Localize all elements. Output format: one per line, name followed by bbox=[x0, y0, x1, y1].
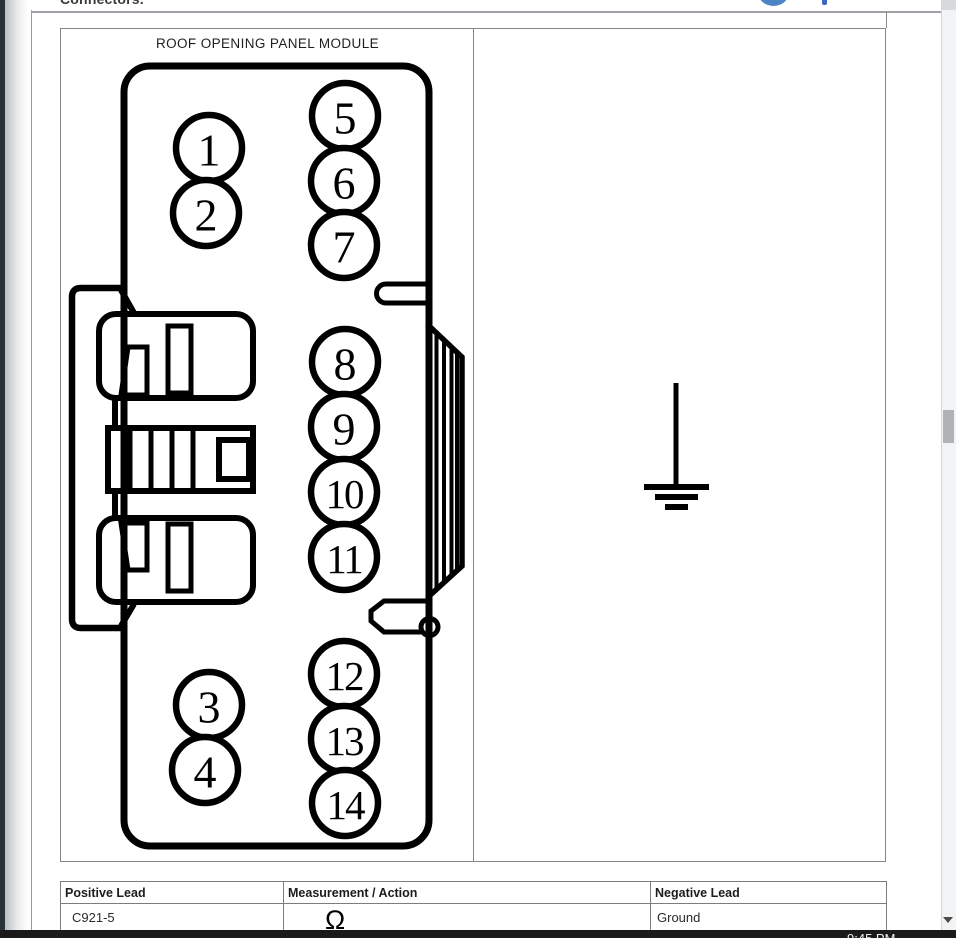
taskbar-clock[interactable]: 9:45 PM bbox=[847, 931, 895, 938]
pin-number-12: 12 bbox=[326, 653, 364, 699]
pin-number-7: 7 bbox=[333, 222, 356, 273]
page-left-border bbox=[31, 10, 32, 930]
pin-group: 1234567891011121314 bbox=[172, 83, 378, 836]
scrollbar-top-cap bbox=[941, 0, 956, 10]
pin-number-14: 14 bbox=[327, 782, 366, 828]
pin-number-5: 5 bbox=[334, 93, 357, 144]
pin-number-6: 6 bbox=[333, 158, 356, 209]
pin-number-2: 2 bbox=[195, 190, 218, 241]
pin-number-9: 9 bbox=[333, 404, 356, 455]
pin-number-8: 8 bbox=[334, 339, 357, 390]
section-heading-clipped: Connectors. bbox=[58, 0, 258, 9]
pin-number-10: 10 bbox=[326, 471, 364, 517]
ground-icon bbox=[473, 28, 886, 862]
taskbar bbox=[0, 930, 956, 938]
vertical-scrollbar[interactable] bbox=[941, 0, 956, 938]
scrollbar-down-arrow-icon[interactable] bbox=[943, 917, 953, 923]
column-header-measurement-action: Measurement / Action bbox=[284, 882, 651, 904]
pin-number-1: 1 bbox=[198, 125, 221, 176]
side-latch bbox=[72, 288, 253, 628]
pin-number-13: 13 bbox=[326, 718, 364, 764]
section-heading-text: Connectors. bbox=[60, 0, 144, 7]
toolbar-bookmark-icon[interactable] bbox=[822, 0, 827, 5]
heading-divider-line bbox=[31, 11, 941, 13]
scrollbar-thumb[interactable] bbox=[943, 410, 954, 443]
connector-body: 1234567891011121314 bbox=[72, 66, 462, 846]
left-edge-shadow bbox=[5, 0, 31, 938]
pin-number-11: 11 bbox=[326, 536, 362, 582]
browser-viewport: Connectors. ROOF OPENING PANEL MODULE bbox=[0, 0, 956, 938]
content-edge-stub bbox=[886, 11, 887, 28]
upper-slot bbox=[377, 284, 431, 303]
column-header-positive-lead: Positive Lead bbox=[61, 882, 284, 904]
connector-pinout-drawing: 1234567891011121314 bbox=[60, 28, 473, 862]
earth-ground-symbol bbox=[644, 383, 709, 507]
pin-number-4: 4 bbox=[194, 747, 217, 798]
pin-number-3: 3 bbox=[198, 682, 221, 733]
toolbar-blue-icon[interactable] bbox=[757, 0, 790, 6]
table-header-row: Positive Lead Measurement / Action Negat… bbox=[61, 882, 887, 904]
column-header-negative-lead: Negative Lead bbox=[651, 882, 887, 904]
